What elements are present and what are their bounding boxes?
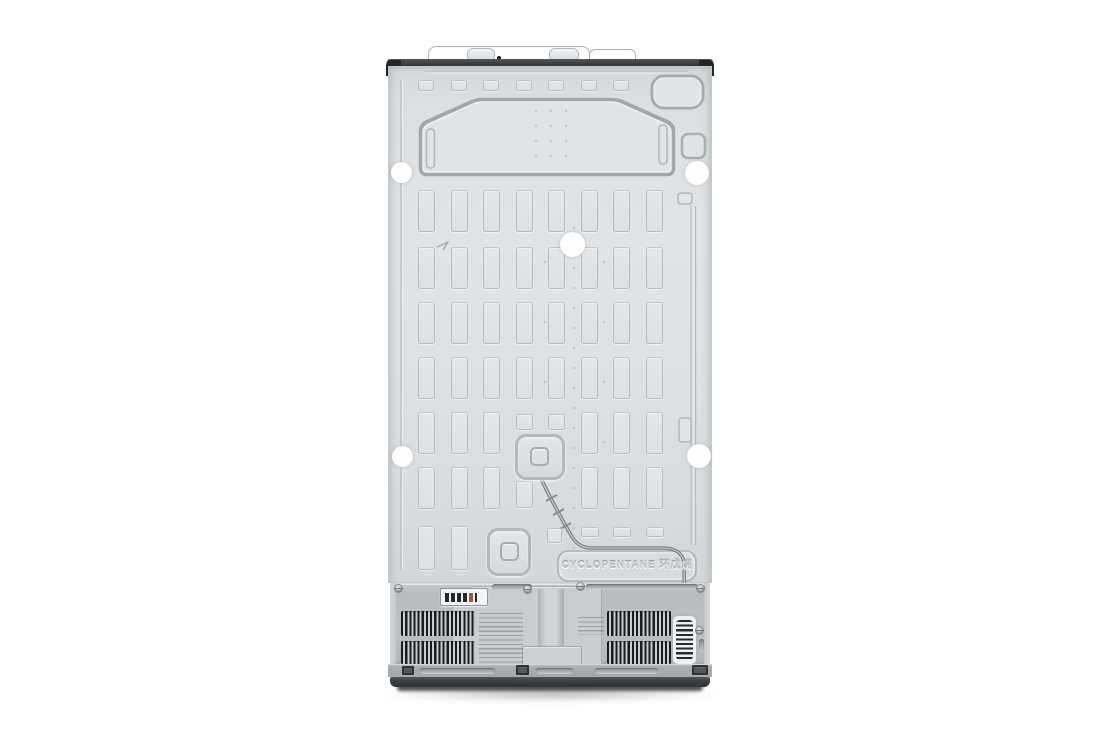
sticker-dot: [687, 444, 711, 468]
power-connector: [692, 665, 708, 675]
screw-icon: [696, 627, 703, 634]
base-slot: [595, 668, 658, 674]
sticker-dot: [685, 161, 709, 185]
screw-icon: [697, 585, 704, 592]
etched-arrow-mark: [437, 242, 448, 250]
caution-text-block: [578, 617, 604, 635]
lip-slot-long: [586, 584, 698, 589]
etched-rect-top-right: [652, 76, 703, 108]
base-plinth: [390, 677, 710, 687]
etched-square-right: [682, 134, 705, 158]
power-cord-label: [440, 588, 488, 606]
screw-icon: [524, 586, 531, 593]
center-pedestal: [538, 589, 564, 649]
sticker-dot: [560, 232, 585, 257]
label-bar: [463, 593, 467, 602]
refrigerant-embossed-text: CYCLOPENTANE 环戊烷: [561, 558, 693, 574]
cabinet-sidewall-right: [704, 583, 710, 667]
sticker-dot: [392, 446, 413, 467]
vent-grille-left: [401, 641, 475, 664]
sticker-dot: [391, 162, 412, 183]
mount-pad-upper: [515, 434, 565, 480]
screw-icon: [395, 585, 402, 592]
label-bar: [451, 593, 455, 602]
refrigerator-back-photo: CYCLOPENTANE 环戊烷: [0, 0, 1100, 730]
vent-grille-right: [607, 611, 671, 636]
cabinet-sidewall-left: [390, 583, 396, 667]
base-strip: [388, 664, 712, 677]
mount-pad-hole: [530, 447, 549, 466]
rating-text-block: [479, 613, 523, 663]
drain-vent-slats: [676, 620, 693, 660]
label-bar: [457, 593, 461, 602]
screw-icon: [577, 583, 584, 590]
bracket-slot: [699, 639, 704, 652]
base-clip: [402, 666, 414, 675]
label-bar-accent: [469, 593, 473, 602]
base-slot: [536, 668, 573, 674]
vent-grille-left: [401, 611, 475, 636]
drain-vent: [671, 614, 698, 666]
base-clip: [516, 665, 529, 675]
mount-pad-lower: [487, 528, 531, 576]
vent-grille-right: [607, 641, 671, 664]
machine-compartment: [390, 583, 710, 667]
label-bar: [445, 593, 449, 602]
base-slot: [420, 668, 495, 674]
label-bar: [475, 593, 477, 602]
mount-pad-hole: [500, 542, 519, 561]
